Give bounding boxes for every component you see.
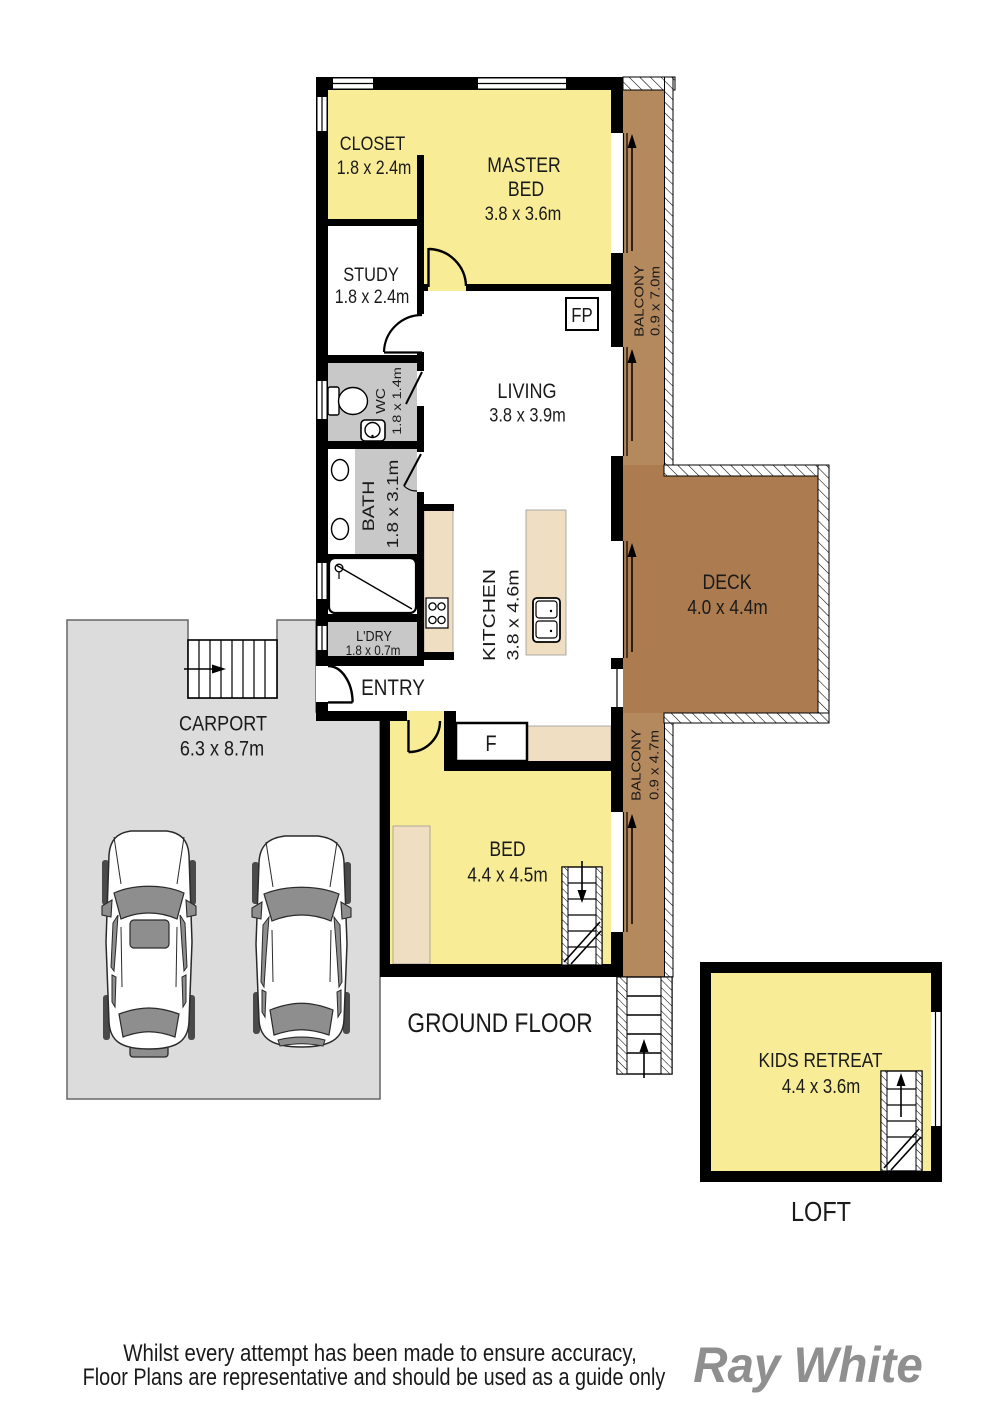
- svg-text:ENTRY: ENTRY: [361, 676, 425, 701]
- svg-text:KIDS RETREAT: KIDS RETREAT: [758, 1050, 882, 1073]
- svg-text:WC: WC: [374, 388, 389, 414]
- svg-text:F: F: [485, 733, 496, 757]
- svg-text:BED: BED: [489, 838, 525, 862]
- svg-text:1.8 x 2.4m: 1.8 x 2.4m: [335, 286, 409, 308]
- svg-text:LIVING: LIVING: [497, 380, 556, 404]
- svg-text:LOFT: LOFT: [791, 1197, 851, 1227]
- svg-text:3.8 x 3.9m: 3.8 x 3.9m: [489, 404, 565, 426]
- svg-text:4.0 x 4.4m: 4.0 x 4.4m: [687, 597, 767, 620]
- svg-text:1.8 x 3.1m: 1.8 x 3.1m: [383, 460, 401, 549]
- svg-text:3.8 x 3.6m: 3.8 x 3.6m: [485, 203, 561, 225]
- svg-text:Ray White: Ray White: [693, 1338, 923, 1393]
- svg-text:DECK: DECK: [703, 571, 752, 595]
- svg-text:0.9 x 7.0m: 0.9 x 7.0m: [648, 266, 663, 336]
- svg-text:Floor Plans are representative: Floor Plans are representative and shoul…: [83, 1363, 666, 1390]
- svg-text:FP: FP: [571, 304, 592, 327]
- svg-text:3.8 x 4.6m: 3.8 x 4.6m: [504, 569, 522, 660]
- svg-text:BED: BED: [508, 178, 544, 202]
- svg-text:GROUND FLOOR: GROUND FLOOR: [407, 1008, 592, 1038]
- svg-text:BALCONY: BALCONY: [632, 265, 647, 337]
- svg-text:BATH: BATH: [359, 481, 377, 532]
- svg-text:CARPORT: CARPORT: [179, 712, 267, 736]
- svg-text:1.8 x 2.4m: 1.8 x 2.4m: [337, 157, 411, 179]
- svg-text:4.4 x 3.6m: 4.4 x 3.6m: [782, 1075, 860, 1098]
- svg-text:1.8 x 1.4m: 1.8 x 1.4m: [390, 367, 404, 435]
- svg-text:0.9 x 4.7m: 0.9 x 4.7m: [647, 730, 662, 800]
- svg-text:4.4 x 4.5m: 4.4 x 4.5m: [467, 864, 547, 887]
- svg-text:1.8 x 0.7m: 1.8 x 0.7m: [346, 642, 401, 658]
- svg-text:6.3 x 8.7m: 6.3 x 8.7m: [180, 737, 264, 761]
- svg-text:BALCONY: BALCONY: [629, 729, 644, 801]
- svg-text:KITCHEN: KITCHEN: [480, 569, 500, 661]
- svg-text:MASTER: MASTER: [487, 154, 560, 178]
- svg-text:CLOSET: CLOSET: [340, 133, 406, 155]
- svg-text:STUDY: STUDY: [343, 264, 399, 286]
